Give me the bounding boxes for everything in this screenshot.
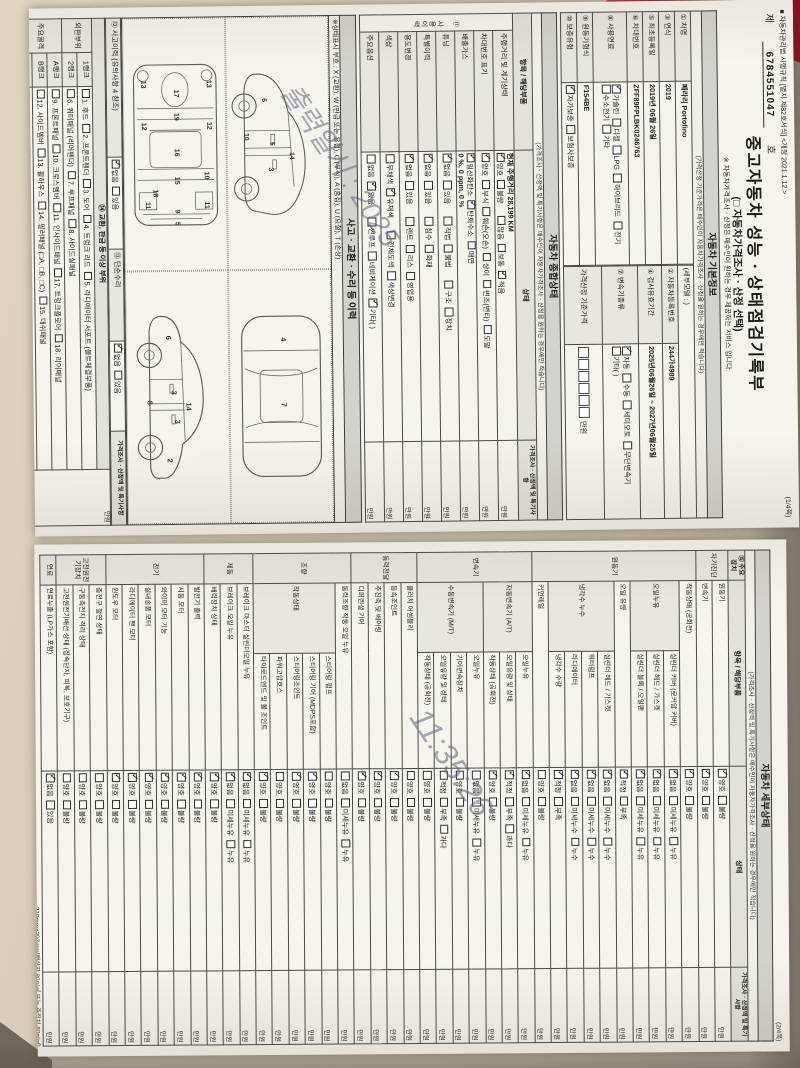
checkbox: [37, 89, 46, 98]
checkbox-option: 없음: [569, 770, 579, 793]
checkbox: [522, 838, 531, 847]
part-number-label: 13: [205, 79, 212, 87]
checkbox-option: 불량: [258, 799, 268, 822]
part-number-label: 12: [140, 122, 147, 130]
checkbox-checked: [369, 299, 378, 308]
detail-row: 냉각수 누수실린더 헤드 / 가스켓없음미세누수누수만원: [597, 551, 617, 1042]
checkbox-option: 불량: [127, 800, 137, 823]
checkbox: [444, 217, 453, 226]
checkbox-option: 4. 트렁크 리드: [82, 214, 93, 267]
checkbox-option: 불량: [684, 796, 694, 819]
part-number-label: 8: [145, 400, 154, 404]
checkbox-option: 11. 인사이드패널: [52, 203, 63, 264]
subgroup-label: 냉각수 누수: [548, 581, 614, 651]
detail-row: 연료연료누출 (LP가스 포함)없음있음만원: [40, 555, 60, 1046]
checkbox: [95, 800, 104, 809]
checkbox-option: 있음: [423, 181, 433, 204]
checkbox-option: 있음: [45, 801, 55, 824]
checkbox: [68, 171, 77, 180]
checkbox-checked: [467, 200, 476, 209]
checkbox-option: 없음: [45, 774, 55, 797]
checkbox-option: 누유: [651, 837, 661, 860]
checkbox-option: 디젤: [611, 118, 621, 141]
checkbox-option: 있음: [366, 182, 376, 205]
detail-row: 자기진단원동기양호불량만원: [712, 550, 732, 1041]
page-marker: (1/4쪽): [783, 497, 792, 518]
checkbox-option: 누수: [569, 838, 579, 861]
checkbox-option: 불량: [536, 797, 546, 820]
checkbox: [243, 799, 252, 808]
part-number-label: 5: [268, 141, 275, 145]
checkbox-option: 누유: [242, 840, 252, 863]
col-price: 가격조사ㆍ산정액 및 특기사항: [731, 967, 748, 1041]
checkbox-option: 14. 필러패널 (□A, □B, □C): [37, 201, 48, 292]
device-group-label: 연료: [40, 555, 57, 585]
checkbox-checked: [566, 85, 575, 94]
detail-row: 전기발전기 출력양호불량만원: [187, 554, 207, 1045]
checkbox-option: 기타( ): [367, 299, 377, 329]
basic-info-right-table: (세부모델 : )② 자동차등록번호244가4989④ 검사유효기간2025년0…: [563, 265, 697, 521]
checkbox-option: 과다: [438, 825, 448, 848]
checkbox: [718, 796, 727, 805]
checkbox-option: 부족: [553, 797, 563, 820]
checkbox: [623, 441, 632, 450]
checkbox: [161, 800, 170, 809]
checkbox: [497, 244, 506, 253]
checkbox: [602, 85, 611, 94]
part-number-label: 14: [288, 152, 295, 160]
checkbox-checked: [112, 773, 121, 782]
checkbox: [538, 770, 547, 779]
checkbox: [407, 798, 416, 807]
checkbox: [68, 219, 77, 228]
checkbox-option: 양호: [480, 153, 490, 176]
checkbox: [587, 837, 596, 846]
checkbox-option: 미세누유: [241, 799, 251, 836]
checkbox: [483, 280, 492, 289]
checkbox-option: 없음: [602, 770, 612, 793]
basic-row: ② 자동차등록번호244가4989: [662, 265, 681, 518]
device-group-label: 고전원전기장치: [56, 555, 105, 585]
checkbox-option: 유채색: [385, 188, 395, 218]
panel-group-label: 외판부위: [62, 18, 92, 52]
checkbox-checked: [718, 769, 727, 778]
checkbox: [603, 797, 612, 806]
checkbox-option: 불량: [495, 180, 505, 203]
checkbox: [482, 208, 491, 217]
checkbox-option: 일산화탄소: [465, 153, 476, 196]
checkbox-option: 수동: [621, 374, 631, 397]
checkbox: [38, 201, 47, 210]
part-number-label: 14: [184, 402, 193, 410]
checkbox: [440, 798, 449, 807]
col-device: ⑮ 주요장치: [728, 550, 745, 580]
detail-row: 원동기작동상태 (공회전)양호불량만원: [679, 551, 699, 1042]
checkbox-option: 상이: [481, 253, 491, 276]
part-number-label: 13: [139, 80, 146, 88]
checkbox-option: 양호: [77, 773, 87, 796]
checkbox-option: 변조(변타): [481, 280, 491, 321]
checkbox: [367, 154, 376, 163]
checkbox-option: 15. 대쉬패널: [38, 296, 49, 345]
overall-state-table: 항목 / 해당부품상태 가격조사ㆍ산정액 및 특기사항⑪ 사용이력 주행거리 및…: [359, 13, 538, 523]
checkbox-option: 없음: [340, 771, 350, 794]
part-number-label: 3: [170, 390, 179, 394]
checkbox: [325, 772, 334, 781]
checkbox-checked: [481, 153, 490, 162]
checkbox-option: 양호: [421, 771, 431, 794]
checkbox-option: 있음: [442, 181, 452, 204]
checkbox: [440, 825, 449, 834]
part-number-label: 6: [164, 335, 173, 339]
checkbox: [554, 797, 563, 806]
checkbox-option: 불법: [442, 244, 452, 267]
checkbox-option: 미세누유: [651, 797, 661, 834]
checkbox-option: 없음: [520, 770, 530, 793]
detail-row: 구동축전지 격리 상태양호불량만원: [73, 555, 93, 1046]
checkbox-checked: [194, 772, 203, 781]
checkbox-option: 적법: [442, 217, 452, 240]
checkbox-option: 자동: [621, 346, 631, 369]
checkbox: [456, 771, 465, 780]
checkbox-checked: [570, 770, 579, 779]
checkbox: [145, 800, 154, 809]
checkbox-option: 누유: [471, 838, 481, 861]
checkbox-option: 구조: [443, 280, 453, 303]
checkbox: [52, 89, 61, 98]
checkbox: [423, 798, 432, 807]
checkbox: [613, 146, 622, 155]
checkbox: [497, 180, 506, 189]
checkbox-option: 적정: [438, 771, 448, 794]
checkbox-checked: [587, 770, 596, 779]
checkbox: [128, 800, 137, 809]
checkbox: [276, 799, 285, 808]
checkbox-option: 2. 프론트펜더: [81, 124, 92, 175]
checkbox-option: 불량: [159, 800, 169, 823]
checkbox-option: 없음: [365, 154, 375, 177]
checkbox: [63, 801, 72, 810]
checkbox: [424, 181, 433, 190]
basic-row: ⑦ 변속기종류자동수동세미오토무단변속기기타( ): [602, 266, 641, 519]
checkbox: [387, 231, 396, 240]
part-number-label: 2: [166, 458, 175, 462]
checkbox-checked: [210, 772, 219, 781]
device-group-label: 원동기: [532, 551, 696, 582]
detail-row: 수동변속기 (M/T)오일누유없음미세누유누유만원: [466, 552, 486, 1043]
checkbox-option: 불량: [307, 799, 317, 822]
basic-row: ⑨ 원동기형식F154BE: [577, 12, 596, 265]
checkbox: [620, 797, 629, 806]
basic-row: ⑧ 사용연료가솔린디젤LPG하이브리드전기수소전기기타: [593, 12, 630, 265]
checkbox-option: 불량: [176, 800, 186, 823]
checkbox: [567, 125, 576, 134]
damage-diagram-box: 6531410 47: [121, 15, 335, 526]
checkbox: [623, 374, 632, 383]
checkbox: [112, 187, 121, 196]
car-diagram-side34: 6531410: [225, 16, 331, 270]
checkbox-option: 과다: [504, 825, 514, 848]
checkbox-checked: [489, 770, 498, 779]
checkbox: [53, 203, 62, 212]
checkbox-checked: [603, 770, 612, 779]
checkbox: [439, 771, 448, 780]
checkbox: [368, 252, 377, 261]
checkbox: [275, 772, 284, 781]
detail-row: 변속기양호불량만원: [695, 550, 715, 1041]
checkbox-option: 9. 프론트패널: [50, 89, 61, 140]
accident-history-label: ⑫ 사고이력 (유의사항 4 참조): [106, 18, 123, 157]
checkbox-checked: [390, 771, 399, 780]
checkbox: [571, 797, 580, 806]
checkbox-option: 양호: [405, 771, 415, 794]
checkbox-option: 있음: [110, 187, 120, 210]
checkbox: [407, 771, 416, 780]
checkbox-option: 양호: [94, 773, 104, 796]
checkbox-option: 양호: [487, 770, 497, 793]
checkbox-option: 기타( ): [611, 346, 621, 376]
checkbox-checked: [114, 344, 123, 353]
checkbox-checked: [443, 154, 452, 163]
checkbox-option: 양호: [126, 773, 136, 796]
basic-row: ⑥ 차대번호ZFF89FPLBK0246763: [627, 12, 646, 265]
checkbox: [483, 325, 492, 334]
checkbox-option: 부식: [480, 180, 490, 203]
checkbox-option: 미세누유: [225, 799, 235, 836]
checkbox: [83, 214, 92, 223]
checkbox: [243, 840, 252, 849]
history-price-header: 가격조사ㆍ산정액 및 특기사항: [111, 431, 127, 526]
checkbox-option: 미세누유: [340, 799, 350, 836]
basic-row: ④ 검사유효기간2025년06월26일 ~ 2027년06월25일: [638, 265, 665, 518]
checkbox-option: 부족: [618, 797, 628, 820]
checkbox-option: 불량: [454, 798, 464, 821]
checkbox-option: 무채색: [384, 154, 394, 184]
car-diagram-profile: 6331428: [125, 270, 231, 524]
checkbox-checked: [112, 160, 121, 169]
checkbox-option: 양호: [208, 772, 218, 795]
checkbox-option: 양호: [192, 772, 202, 795]
doc-no-prefix: 제: [763, 14, 774, 24]
detail-row: 와이퍼 모터 기능양호불량만원: [155, 554, 175, 1045]
checkbox-checked: [243, 772, 252, 781]
checkbox: [425, 244, 434, 253]
checkbox-option: 누유: [520, 838, 530, 861]
checkbox: [571, 838, 580, 847]
page-1-sheet: ■ 자동차관리법 시행규칙 [별지 제82호서식] <개정 2021.1.12.…: [29, 0, 799, 537]
col-item: 항목 / 해당부품: [728, 580, 746, 766]
checkbox: [387, 271, 396, 280]
detail-row: 디퍼렌셜 기어양호불량만원: [351, 553, 371, 1044]
checkbox: [308, 799, 317, 808]
checkbox-option: 불량: [110, 800, 120, 823]
subgroup-label: 오일누유: [630, 581, 680, 651]
checkbox: [55, 334, 64, 343]
checkbox-option: 불량: [422, 798, 432, 821]
checkbox: [603, 125, 612, 134]
checkbox-option: 불량: [77, 801, 87, 824]
checkbox: [386, 154, 395, 163]
detail-state-table: ⑮ 주요장치 항목 / 해당부품 상태 가격조사ㆍ산정액 및 특기사항 자기진단…: [39, 550, 748, 1047]
checkbox: [467, 241, 476, 250]
checkbox: [112, 800, 121, 809]
checkbox-option: 가솔린: [611, 84, 621, 114]
checkbox-option: 있음: [404, 181, 414, 204]
part-number-label: 7: [280, 402, 289, 406]
checkbox-option: 수소전기: [601, 85, 611, 122]
subgroup-label: 자동변속기 (A/T): [483, 582, 533, 652]
checkbox-checked: [226, 772, 235, 781]
checkbox-option: 5. 라디에이터 서포트 (볼트체결부품): [82, 271, 93, 390]
checkbox: [443, 181, 452, 190]
checkbox-option: 많음: [496, 216, 506, 239]
basic-row: (세부모델 : ): [678, 265, 697, 518]
checkbox-option: 없음: [241, 772, 251, 795]
part-number-label: 18: [151, 189, 158, 197]
part-number-label: 17: [172, 89, 179, 97]
simple-repair-state: 없음있음: [110, 341, 126, 431]
checkbox: [614, 221, 623, 230]
checkbox-option: 불량: [143, 800, 153, 823]
checkbox-option: 네비게이션: [366, 252, 377, 295]
checkbox-option: 없음: [635, 769, 645, 792]
checkbox: [456, 798, 465, 807]
checkbox-option: 누유: [668, 837, 678, 860]
checkbox: [669, 837, 678, 846]
checkbox-option: 미세누수: [602, 797, 612, 834]
checkbox-option: 미세누유: [520, 797, 530, 834]
detail-row: 등속조인트양호불량만원: [384, 553, 404, 1044]
checkbox-option: 양호: [684, 769, 694, 792]
part-number-label: 6: [260, 98, 267, 102]
checkbox: [259, 799, 268, 808]
checkbox-option: 전기: [612, 221, 622, 244]
checkbox-option: 없음: [471, 771, 481, 794]
checkbox-option: 누유: [340, 839, 350, 862]
photo-of-inspection-document: { "scene":{"desk":"#d6cbb4","red_cloth":…: [0, 0, 800, 1068]
checkbox: [342, 839, 351, 848]
checkbox: [482, 180, 491, 189]
checkbox-option: 무단변속기: [622, 441, 633, 484]
checkbox-option: 있음: [113, 371, 123, 394]
checkbox-checked: [161, 773, 170, 782]
checkbox-option: 양호: [61, 773, 71, 796]
part-number-label: 11: [203, 201, 210, 209]
checkbox: [39, 296, 48, 305]
basic-row: ① 차명페라리 Portofino: [675, 11, 694, 264]
checkbox: [473, 838, 482, 847]
checkbox-option: 10. 크로스멤버: [51, 144, 62, 199]
checkbox-option: 침수: [423, 217, 433, 240]
checkbox-option: 적정: [618, 770, 628, 793]
checkbox: [54, 269, 63, 278]
page-marker-2: (2/4쪽): [774, 1022, 782, 1041]
checkbox-option: 훼손(오손): [480, 208, 490, 249]
checkbox: [114, 371, 123, 380]
checkbox-option: 렌트: [404, 217, 414, 240]
device-group-label: 제동: [204, 554, 253, 584]
checkbox-option: 미세누유: [668, 796, 678, 833]
detail-row: 윈도우 모터양호불량만원: [105, 555, 125, 1046]
checkbox-checked: [292, 772, 301, 781]
checkbox: [637, 837, 646, 846]
checkbox-checked: [612, 84, 621, 93]
part-number-label: 10: [242, 133, 249, 141]
detail-row: 추진축 및 베어링양호불량만원: [368, 553, 388, 1044]
checkbox: [406, 245, 415, 254]
checkbox: [82, 89, 91, 98]
detail-row: 조향동력조향 작동 오일 누유없음미세누유누유만원: [335, 553, 355, 1044]
checkbox: [587, 797, 596, 806]
page-2-sheet: (2/4쪽) 자동차 세부상태 (가격조사ㆍ산정액 및 특기사항은 매수인이 자…: [34, 539, 790, 1056]
checkbox: [29, 149, 31, 158]
checkbox: [636, 797, 645, 806]
checkbox-option: 양호: [110, 773, 120, 796]
checkbox-option: 탄화수소: [465, 200, 475, 237]
exchange-price-cell: 만원: [29, 469, 111, 526]
checkbox-option: 적정: [553, 770, 563, 793]
checkbox-option: 양호: [274, 772, 284, 795]
detail-row: 오일 유량적정부족만원: [613, 551, 633, 1042]
device-group-label: 변속기: [417, 552, 532, 583]
checkbox-option: 불량: [405, 798, 415, 821]
checkbox-option: 불량: [487, 798, 497, 821]
checkbox: [325, 799, 334, 808]
checkbox-option: 8. 사이드실패널: [67, 219, 78, 277]
checkbox: [612, 118, 621, 127]
checkbox: [358, 799, 367, 808]
checkbox-option: 양호: [176, 773, 186, 796]
checkbox: [210, 800, 219, 809]
checkbox: [29, 90, 31, 99]
detail-row: 오일누유실린더 커버 (로커암 커버)없음미세누유누유만원: [663, 551, 683, 1042]
checkbox: [46, 801, 55, 810]
checkbox-option: 양호: [495, 153, 505, 176]
checkbox-option: 양호: [143, 773, 153, 796]
checkbox-checked: [357, 771, 366, 780]
checkbox-option: 7. 루프패널: [66, 171, 77, 216]
detail-row: 고전원전기배선 상태 (접속단자, 피복, 보호기구)양호불량만원: [56, 555, 76, 1046]
basic-row: ③ 연식2019: [659, 11, 678, 264]
checkbox-checked: [669, 769, 678, 778]
checkbox-option: 색상변경: [386, 271, 396, 308]
detail-row: 배력장치 상태양호불량만원: [204, 554, 224, 1045]
use-history-group-label: ⑪ 사용이력: [359, 13, 512, 32]
checkbox: [497, 216, 506, 225]
checkbox: [194, 800, 203, 809]
checkbox: [390, 798, 399, 807]
checkbox-option: 불량: [700, 796, 710, 819]
checkbox-option: 불량: [61, 801, 71, 824]
basic-row: 가격산정 기준가격 만원: [564, 266, 605, 519]
doc-no-suffix: 호: [764, 145, 775, 155]
checkbox-checked: [652, 769, 661, 778]
checkbox-checked: [620, 770, 629, 779]
checkbox-checked: [554, 770, 563, 779]
accident-history-state: 없음있음: [108, 157, 124, 249]
part-number-label: 12: [205, 121, 212, 129]
checkbox-option: 없음: [441, 154, 451, 177]
checkbox: [84, 271, 93, 280]
detail-row: 작동상태스티어링 펌프양호불량만원: [318, 553, 338, 1044]
part-number-label: 5: [174, 221, 181, 225]
checkbox: [472, 771, 481, 780]
checkbox-option: 양호: [258, 772, 268, 795]
checkbox-checked: [466, 153, 475, 162]
car-diagram-top: 47: [228, 269, 334, 523]
checkbox: [341, 771, 350, 780]
subgroup-label: 수동변속기 (M/T): [417, 582, 483, 652]
